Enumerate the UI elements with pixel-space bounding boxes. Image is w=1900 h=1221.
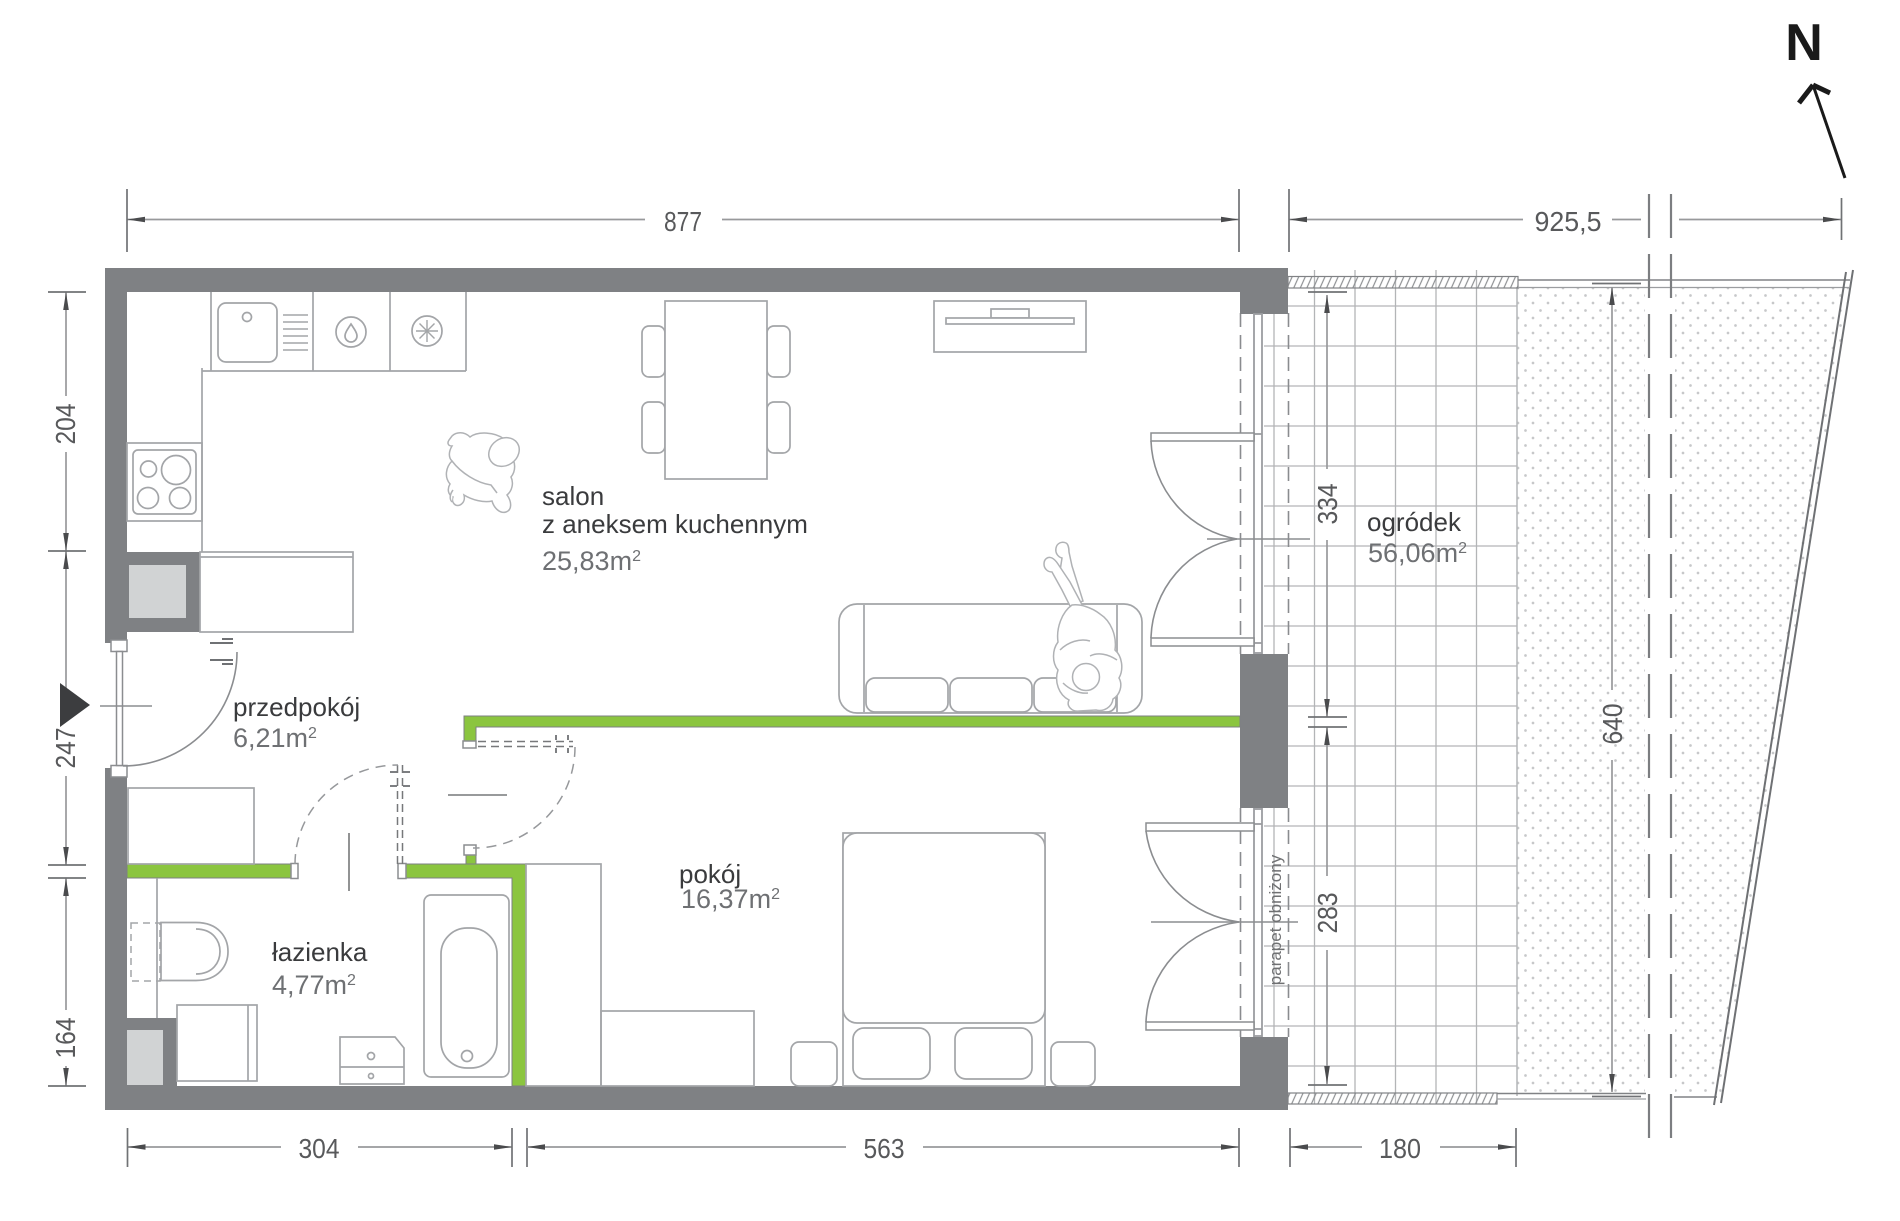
svg-text:25,83m2: 25,83m2 — [542, 546, 641, 576]
svg-text:parapet obniżony: parapet obniżony — [1266, 854, 1285, 985]
svg-text:łazienka: łazienka — [272, 937, 368, 967]
svg-text:925,5: 925,5 — [1535, 206, 1602, 237]
svg-text:247: 247 — [50, 728, 81, 769]
svg-text:180: 180 — [1379, 1133, 1421, 1164]
svg-text:204: 204 — [50, 404, 81, 445]
svg-text:ogródek: ogródek — [1367, 507, 1462, 537]
svg-text:16,37m2: 16,37m2 — [681, 884, 780, 914]
svg-text:4,77m2: 4,77m2 — [272, 970, 356, 1000]
svg-text:salon: salon — [542, 481, 604, 511]
svg-text:przedpokój: przedpokój — [233, 692, 360, 722]
svg-text:56,06m2: 56,06m2 — [1368, 538, 1467, 568]
svg-text:164: 164 — [50, 1018, 81, 1059]
svg-text:877: 877 — [664, 206, 702, 237]
svg-text:640: 640 — [1597, 704, 1628, 745]
svg-text:z aneksem kuchennym: z aneksem kuchennym — [542, 509, 808, 539]
svg-text:563: 563 — [864, 1133, 905, 1164]
svg-text:N: N — [1785, 14, 1823, 72]
svg-text:334: 334 — [1312, 484, 1343, 525]
svg-text:304: 304 — [299, 1133, 340, 1164]
svg-text:283: 283 — [1312, 893, 1343, 934]
svg-text:6,21m2: 6,21m2 — [233, 723, 317, 753]
